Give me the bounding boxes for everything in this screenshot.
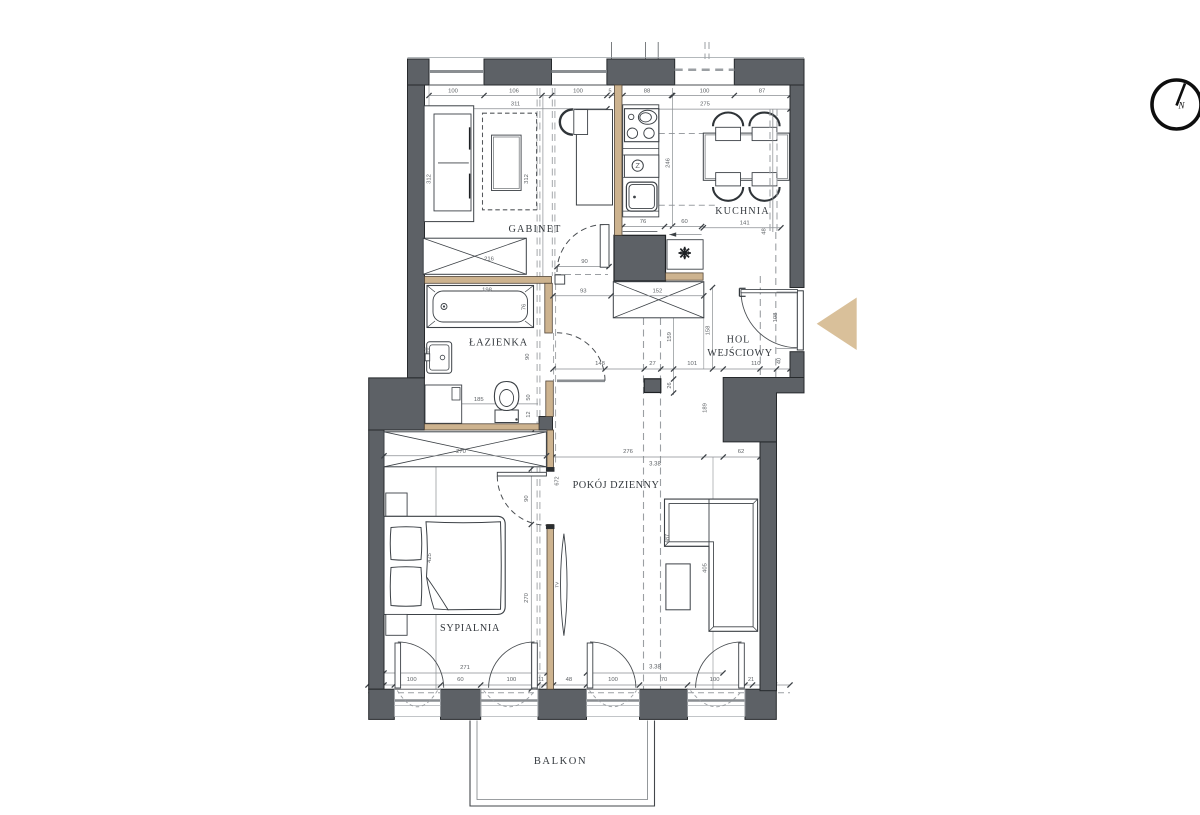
- svg-text:148: 148: [595, 361, 606, 367]
- svg-text:270: 270: [524, 592, 530, 603]
- svg-text:48: 48: [761, 228, 767, 235]
- svg-text:Z: Z: [635, 161, 640, 170]
- svg-text:26: 26: [667, 382, 673, 388]
- svg-text:90: 90: [581, 259, 588, 265]
- svg-text:60: 60: [681, 219, 688, 225]
- svg-text:672: 672: [555, 476, 561, 485]
- svg-text:100: 100: [608, 677, 619, 683]
- svg-text:76: 76: [640, 219, 647, 225]
- svg-text:100: 100: [573, 89, 584, 95]
- svg-text:100: 100: [407, 677, 418, 683]
- svg-text:48: 48: [566, 677, 573, 683]
- svg-text:88: 88: [644, 89, 651, 95]
- svg-text:275: 275: [700, 102, 711, 108]
- svg-text:246: 246: [665, 157, 671, 168]
- svg-text:GABINET: GABINET: [508, 224, 561, 235]
- svg-text:152: 152: [652, 288, 662, 294]
- svg-text:62: 62: [738, 449, 745, 455]
- svg-text:KUCHNIA: KUCHNIA: [715, 206, 770, 217]
- svg-text:50: 50: [526, 394, 532, 400]
- svg-text:27: 27: [649, 361, 656, 367]
- svg-text:40: 40: [777, 358, 783, 364]
- svg-text:60: 60: [457, 677, 464, 683]
- svg-text:POKÓJ DZIENNY: POKÓJ DZIENNY: [573, 479, 660, 491]
- svg-text:311: 311: [511, 101, 520, 107]
- svg-text:312: 312: [524, 174, 530, 184]
- svg-text:158: 158: [706, 325, 712, 336]
- svg-text:276: 276: [623, 449, 634, 455]
- svg-text:60: 60: [425, 347, 431, 353]
- svg-text:90: 90: [524, 495, 530, 502]
- svg-text:270: 270: [456, 449, 467, 455]
- svg-text:100: 100: [506, 677, 517, 683]
- svg-text:487: 487: [665, 534, 671, 543]
- svg-text:271: 271: [460, 665, 470, 671]
- svg-text:100: 100: [448, 89, 459, 95]
- svg-text:90: 90: [525, 353, 531, 360]
- svg-text:405: 405: [703, 562, 709, 573]
- svg-text:3.38: 3.38: [649, 665, 661, 671]
- svg-text:76: 76: [522, 303, 528, 310]
- svg-text:100: 100: [700, 89, 711, 95]
- svg-text:WEJŚCIOWY: WEJŚCIOWY: [707, 347, 772, 359]
- svg-text:101: 101: [687, 361, 697, 367]
- svg-text:3.38: 3.38: [649, 462, 661, 468]
- svg-text:425: 425: [427, 552, 433, 563]
- svg-text:106: 106: [509, 89, 520, 95]
- svg-text:110: 110: [751, 361, 761, 367]
- svg-text:312: 312: [426, 174, 432, 184]
- svg-text:87: 87: [759, 89, 766, 95]
- svg-text:12: 12: [526, 411, 532, 417]
- svg-text:11: 11: [538, 677, 544, 683]
- svg-text:BALKON: BALKON: [534, 756, 587, 767]
- svg-text:198: 198: [482, 288, 493, 294]
- svg-text:108: 108: [773, 312, 779, 323]
- svg-text:5: 5: [608, 89, 611, 95]
- svg-text:21: 21: [748, 677, 754, 683]
- svg-text:100: 100: [710, 677, 721, 683]
- svg-text:TV: TV: [555, 582, 560, 588]
- svg-text:N: N: [1178, 101, 1186, 111]
- svg-text:216: 216: [484, 257, 495, 263]
- svg-text:SYPIALNIA: SYPIALNIA: [440, 623, 500, 634]
- svg-text:HOL: HOL: [727, 335, 751, 346]
- svg-text:189: 189: [703, 403, 709, 413]
- svg-text:70: 70: [661, 677, 668, 683]
- svg-text:93: 93: [580, 288, 587, 294]
- svg-text:141: 141: [740, 220, 750, 226]
- svg-text:185: 185: [474, 397, 485, 403]
- svg-text:159: 159: [667, 332, 673, 342]
- svg-text:ŁAZIENKA: ŁAZIENKA: [469, 338, 528, 349]
